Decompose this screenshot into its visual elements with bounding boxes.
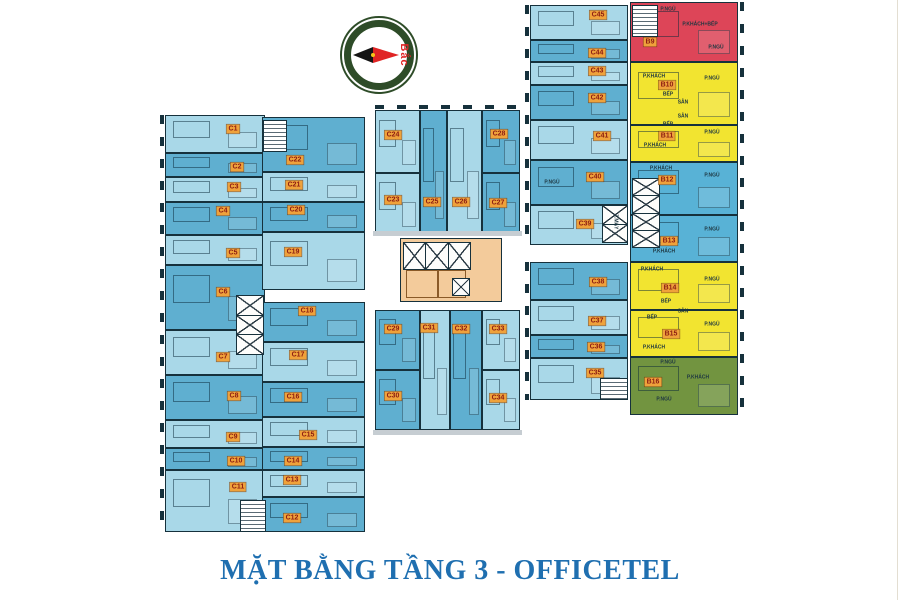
- elevator-shaft-icon: [453, 279, 469, 295]
- unit-label-C40: C40: [587, 173, 604, 182]
- unit-C3: [165, 177, 265, 202]
- unit-C43: [530, 62, 628, 85]
- unit-label-B11: B11: [659, 132, 675, 141]
- unit-C16: [262, 382, 365, 417]
- unit-label-B10: B10: [659, 81, 676, 90]
- column-tick-strip: [160, 115, 164, 532]
- elevator-shaft-icon: [633, 179, 659, 195]
- unit-C26: [447, 110, 482, 235]
- unit-label-C5: C5: [227, 249, 240, 258]
- room-label: P.KHÁCH+BẾP: [682, 23, 717, 28]
- unit-label-C39: C39: [577, 220, 594, 229]
- unit-label-C8: C8: [228, 392, 241, 401]
- unit-label-C10: C10: [228, 457, 245, 466]
- elevator-shaft-icon: [449, 243, 470, 269]
- unit-label-C15: C15: [300, 431, 317, 440]
- unit-C44: [530, 40, 628, 62]
- unit-C4: [165, 202, 265, 235]
- unit-label-C32: C32: [453, 325, 470, 334]
- unit-C10: [165, 448, 265, 470]
- room-label: SÂN: [678, 310, 689, 315]
- unit-C9: [165, 420, 265, 448]
- column-tick-strip: [525, 5, 529, 245]
- room-label: BẾP: [661, 300, 671, 305]
- elevator-shaft-icon: [633, 214, 659, 230]
- unit-C45: [530, 5, 628, 40]
- room-label: BẾP: [647, 316, 657, 321]
- elevator-bank: [632, 178, 660, 248]
- room-label: SÂN: [678, 101, 689, 106]
- unit-C42: [530, 85, 628, 120]
- unit-C17: [262, 342, 365, 382]
- unit-C20: [262, 202, 365, 232]
- room-label: P.KHÁCH: [653, 250, 675, 255]
- unit-label-C31: C31: [421, 324, 438, 333]
- room-label: P.NGỦ: [704, 278, 719, 283]
- elevator-bank: [403, 242, 471, 270]
- unit-C29: [375, 310, 420, 370]
- unit-C2: [165, 153, 265, 177]
- unit-label-C17: C17: [290, 351, 307, 360]
- unit-label-C34: C34: [490, 394, 507, 403]
- room-label: P.NGỦ: [704, 131, 719, 136]
- unit-C37: [530, 300, 628, 335]
- room-label: P.KHÁCH: [650, 167, 672, 172]
- unit-label-C12: C12: [284, 514, 301, 523]
- unit-label-C9: C9: [227, 433, 240, 442]
- elevator-shaft-icon: [633, 196, 659, 212]
- column-tick-strip: [525, 262, 529, 400]
- room-label: P.NGỦ: [704, 228, 719, 233]
- room-label: P.KHÁCH: [643, 75, 665, 80]
- room-label: BẾP: [663, 123, 673, 128]
- column-tick-strip: [740, 2, 744, 415]
- unit-label-C35: C35: [587, 369, 604, 378]
- stairwell: [263, 120, 287, 152]
- unit-label-C20: C20: [288, 206, 305, 215]
- unit-label-C29: C29: [385, 325, 402, 334]
- elevator-shaft-icon: [237, 335, 263, 354]
- unit-label-C11: C11: [230, 483, 246, 492]
- unit-label-C14: C14: [285, 457, 302, 466]
- unit-label-C2: C2: [231, 163, 244, 172]
- corridor-bar: [373, 231, 522, 236]
- unit-label-B15: B15: [663, 330, 680, 339]
- room-label: P.NGỦ: [704, 77, 719, 82]
- elevator-shaft-icon: [426, 243, 447, 269]
- elevator-shaft-icon: [237, 316, 263, 335]
- unit-label-C37: C37: [589, 317, 606, 326]
- unit-label-C33: C33: [490, 325, 507, 334]
- corridor-bar: [373, 430, 522, 435]
- room-label: BẾP: [663, 93, 673, 98]
- unit-label-C44: C44: [589, 49, 606, 58]
- unit-label-C24: C24: [385, 131, 402, 140]
- stairwell: [600, 378, 628, 400]
- unit-label-C13: C13: [284, 476, 301, 485]
- compass-needle-black: [353, 47, 373, 63]
- unit-label-C19: C19: [285, 248, 302, 257]
- unit-C24: [375, 110, 420, 173]
- elevator-shaft-icon: [237, 296, 263, 315]
- unit-C8: [165, 375, 265, 420]
- room-label: P.KHÁCH: [644, 144, 666, 149]
- elevator-shaft-icon: [633, 231, 659, 247]
- room-label: P.NGỦ: [708, 46, 723, 51]
- page-title: MẶT BẰNG TẦNG 3 - OFFICETEL: [0, 555, 900, 587]
- unit-C38: [530, 262, 628, 300]
- unit-label-C27: C27: [490, 199, 507, 208]
- elevator-bank: [236, 295, 264, 355]
- unit-label-C18: C18: [299, 307, 316, 316]
- unit-C14: [262, 447, 365, 470]
- room-label: P.KHÁCH: [641, 268, 663, 273]
- elevator-bank: [452, 278, 470, 296]
- unit-label-C28: C28: [491, 130, 508, 139]
- unit-label-B14: B14: [662, 284, 679, 293]
- unit-label-C42: C42: [589, 94, 606, 103]
- unit-label-C4: C4: [217, 207, 230, 216]
- room-label: P.NGỦ: [660, 8, 675, 13]
- unit-C5: [165, 235, 265, 265]
- unit-label-C23: C23: [385, 196, 402, 205]
- room-label: P.NGỦ: [704, 323, 719, 328]
- core-room: [406, 270, 438, 298]
- unit-label-B16: B16: [645, 378, 662, 387]
- room-label: P.NGỦ: [544, 181, 559, 186]
- unit-C1: [165, 115, 265, 153]
- unit-label-C43: C43: [589, 67, 606, 76]
- room-label: P.NGỦ: [704, 174, 719, 179]
- unit-label-C45: C45: [590, 11, 607, 20]
- room-label: P.KHÁCH: [687, 376, 709, 381]
- unit-label-C22: C22: [287, 156, 304, 165]
- unit-C12: [262, 497, 365, 532]
- unit-label-C36: C36: [588, 343, 605, 352]
- unit-C36: [530, 335, 628, 358]
- compass: Bắc: [340, 16, 418, 94]
- compass-center-dot: [371, 53, 375, 57]
- stairwell: [632, 5, 658, 37]
- unit-C41: [530, 120, 628, 160]
- unit-label-C30: C30: [385, 392, 402, 401]
- unit-label-B12: B12: [659, 176, 676, 185]
- unit-label-C25: C25: [424, 198, 441, 207]
- unit-label-C3: C3: [228, 183, 241, 192]
- unit-C19: [262, 232, 365, 290]
- unit-label-C41: C41: [594, 132, 611, 141]
- column-tick-strip: [375, 105, 520, 109]
- unit-label-B13: B13: [661, 237, 678, 246]
- compass-north-label: Bắc: [398, 43, 410, 66]
- unit-C13: [262, 470, 365, 497]
- compass-needle-red-icon: [373, 47, 399, 63]
- room-label: SÂN: [678, 115, 689, 120]
- room-label: P.KHÁCH: [643, 346, 665, 351]
- unit-C28: [482, 110, 520, 173]
- unit-label-C7: C7: [217, 353, 230, 362]
- unit-C21: [262, 172, 365, 202]
- unit-label-C26: C26: [453, 198, 470, 207]
- unit-C33: [482, 310, 520, 370]
- unit-label-C1: C1: [227, 125, 240, 134]
- unit-label-C38: C38: [590, 278, 607, 287]
- unit-label-C6: C6: [217, 288, 230, 297]
- right-edge-line: [897, 0, 898, 600]
- room-label: P.NGỦ: [656, 398, 671, 403]
- floor-plan: Bắc MẶT BẰNG TẦNG 3 - OFFICETEL C1C2C3C4…: [0, 0, 900, 600]
- stairwell: [240, 500, 266, 532]
- unit-C25: [420, 110, 447, 235]
- elevator-shaft-icon: [404, 243, 425, 269]
- room-label: T.MÁY: [613, 215, 618, 230]
- room-label: P.NGỦ: [660, 361, 675, 366]
- unit-label-C16: C16: [285, 393, 302, 402]
- unit-label-C21: C21: [286, 181, 303, 190]
- unit-label-B9: B9: [644, 38, 657, 47]
